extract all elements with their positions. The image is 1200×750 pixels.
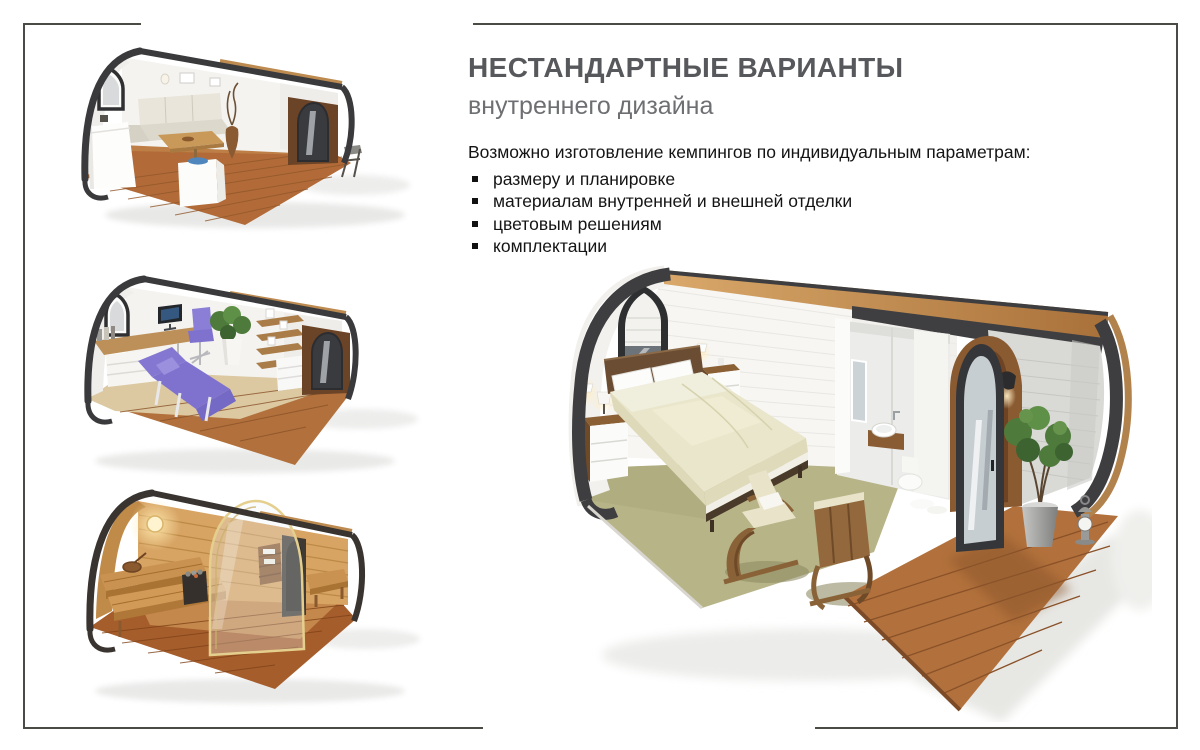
frame-left [23,23,25,729]
page-title: НЕСТАНДАРТНЫЕ ВАРИАНТЫ [468,52,903,84]
bullet-list: размеру и планировке материалам внутренн… [468,168,1038,258]
frame-bottom-right-segment [815,727,1178,729]
frame-top-left-segment [23,23,141,25]
body-text: Возможно изготовление кемпингов по индив… [468,141,1038,258]
pod-living-dining-illustration [60,36,420,238]
pod-office-massage-illustration [60,268,430,480]
slide: НЕСТАНДАРТНЫЕ ВАРИАНТЫ внутреннего дизай… [0,0,1200,750]
figure-pod-living-dining [60,36,420,238]
page-subtitle: внутреннего дизайна [468,92,713,120]
entrance-door [956,344,1004,552]
bullet-item: материалам внутренней и внешней отделки [468,190,1038,212]
bullet-item: комплектации [468,235,1038,257]
end-door [302,325,350,395]
figure-pod-office-massage [60,268,430,480]
frame-top-right-segment [473,23,1178,25]
bullet-item: цветовым решениям [468,213,1038,235]
pod-sauna-illustration [60,478,430,710]
end-door [288,97,338,165]
figure-pod-sauna [60,478,430,710]
sauna-stove [182,569,208,605]
intro-line: Возможно изготовление кемпингов по индив… [468,141,1038,163]
frame-bottom-left-segment [23,727,483,729]
figure-pod-bedroom-bathroom [552,260,1152,722]
bullet-item: размеру и планировке [468,168,1038,190]
frame-right [1176,23,1178,729]
side-table-bowl [178,157,226,207]
pod-bedroom-illustration [552,260,1152,722]
